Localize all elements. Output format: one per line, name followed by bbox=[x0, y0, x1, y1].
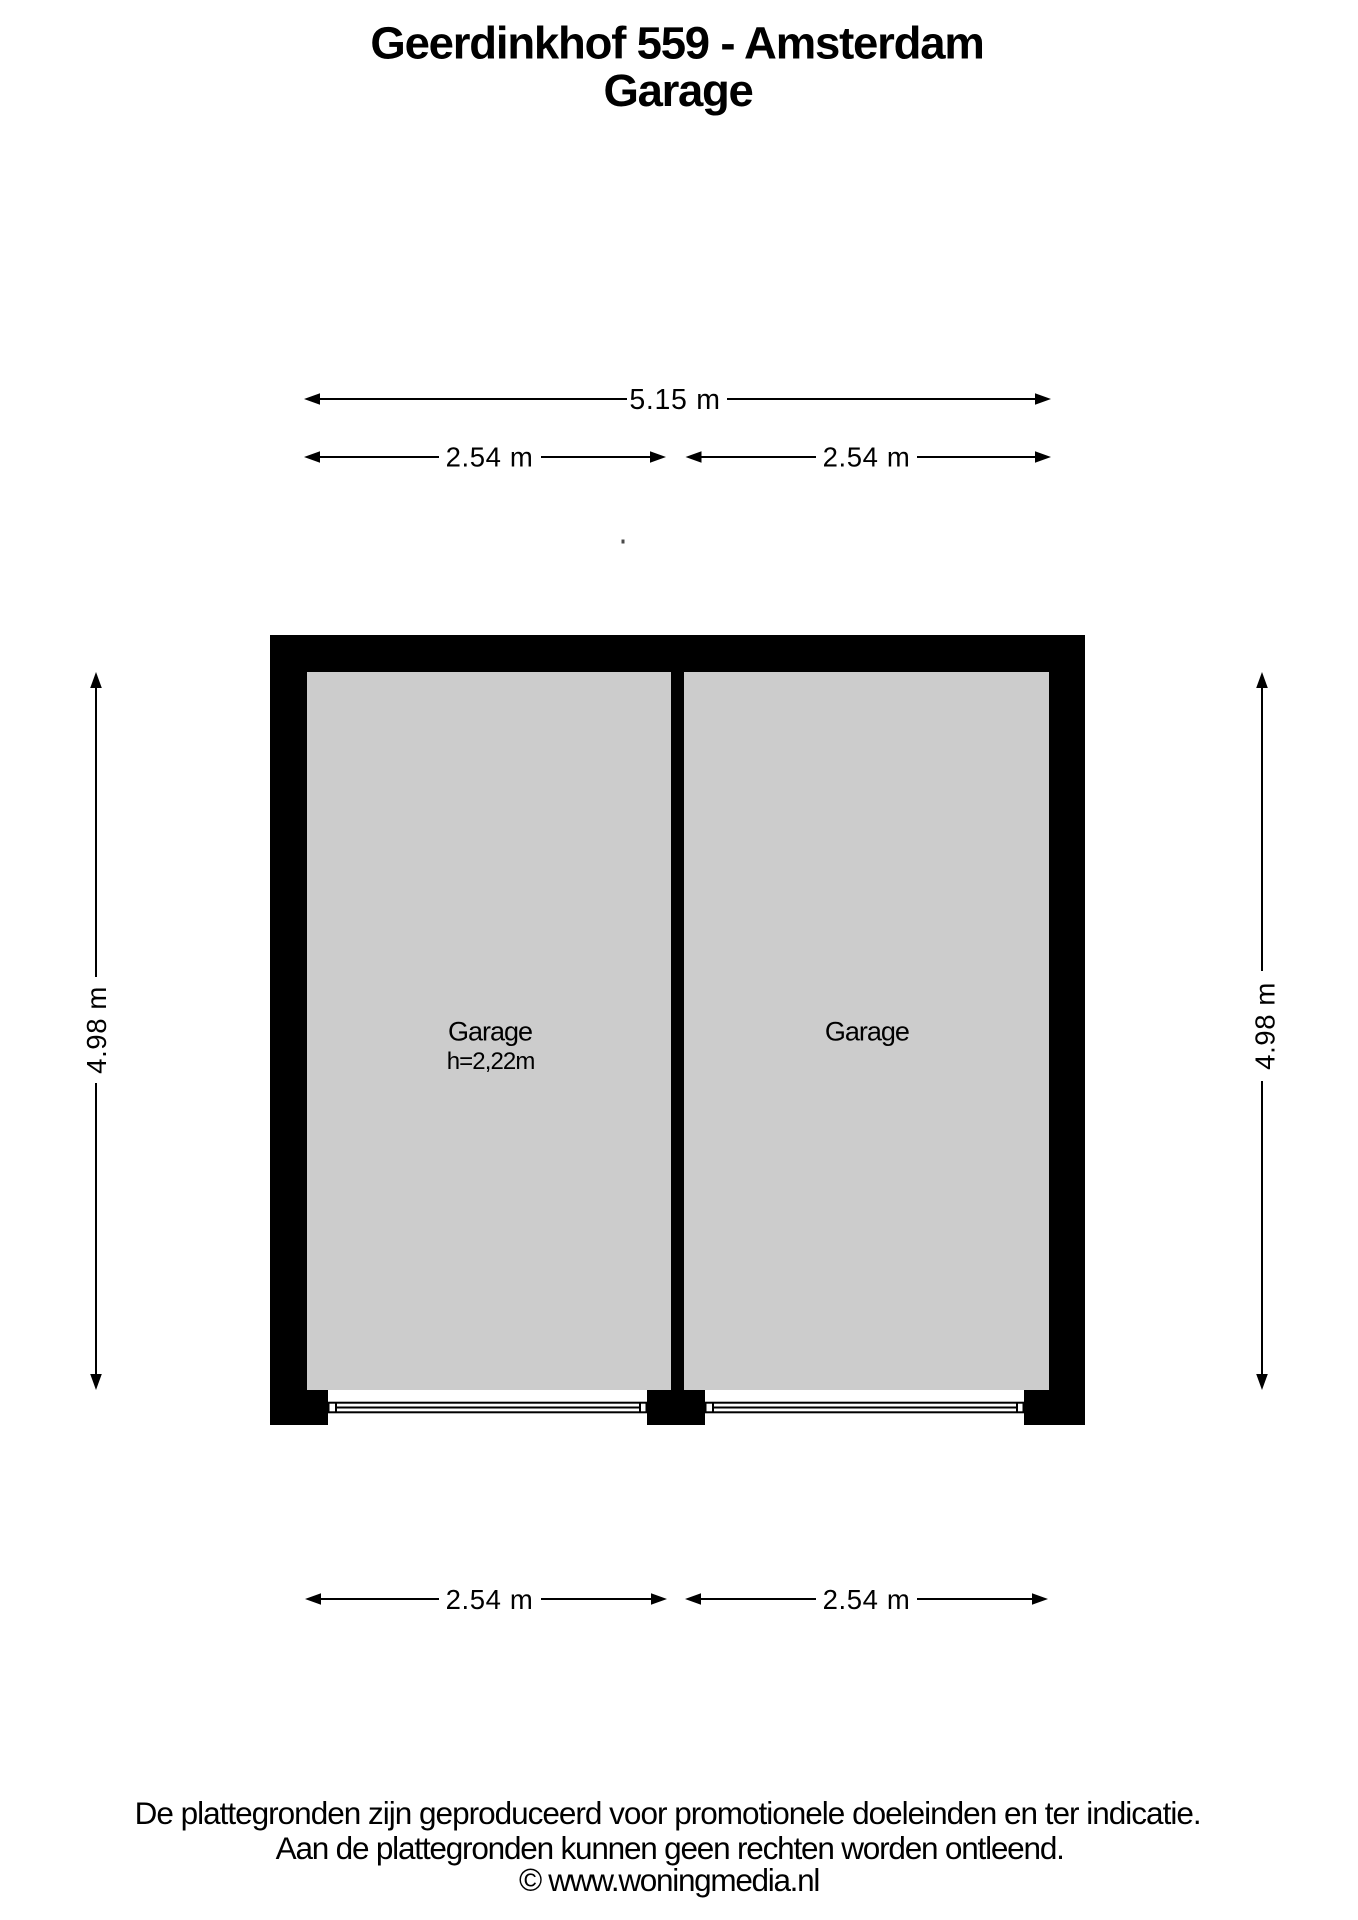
svg-text:2.54 m: 2.54 m bbox=[823, 442, 911, 473]
svg-text:Aan de plattegronden kunnen ge: Aan de plattegronden kunnen geen rechten… bbox=[276, 1830, 1064, 1866]
svg-text:4.98 m: 4.98 m bbox=[81, 986, 112, 1074]
svg-text:4.98 m: 4.98 m bbox=[1250, 982, 1281, 1070]
svg-text:2.54 m: 2.54 m bbox=[823, 1584, 911, 1615]
svg-text:Garage: Garage bbox=[448, 1016, 532, 1046]
svg-text:Geerdinkhof 559 - Amsterdam: Geerdinkhof 559 - Amsterdam bbox=[370, 18, 983, 69]
svg-text:2.54 m: 2.54 m bbox=[446, 1584, 534, 1615]
svg-text:2.54 m: 2.54 m bbox=[446, 442, 534, 473]
svg-text:De plattegronden zijn geproduc: De plattegronden zijn geproduceerd voor … bbox=[135, 1795, 1201, 1831]
svg-text:h=2,22m: h=2,22m bbox=[447, 1048, 535, 1075]
svg-text:© www.woningmedia.nl: © www.woningmedia.nl bbox=[519, 1862, 819, 1898]
svg-text:Garage: Garage bbox=[825, 1016, 909, 1046]
svg-text:Garage: Garage bbox=[603, 65, 752, 116]
svg-text:5.15 m: 5.15 m bbox=[629, 384, 720, 416]
